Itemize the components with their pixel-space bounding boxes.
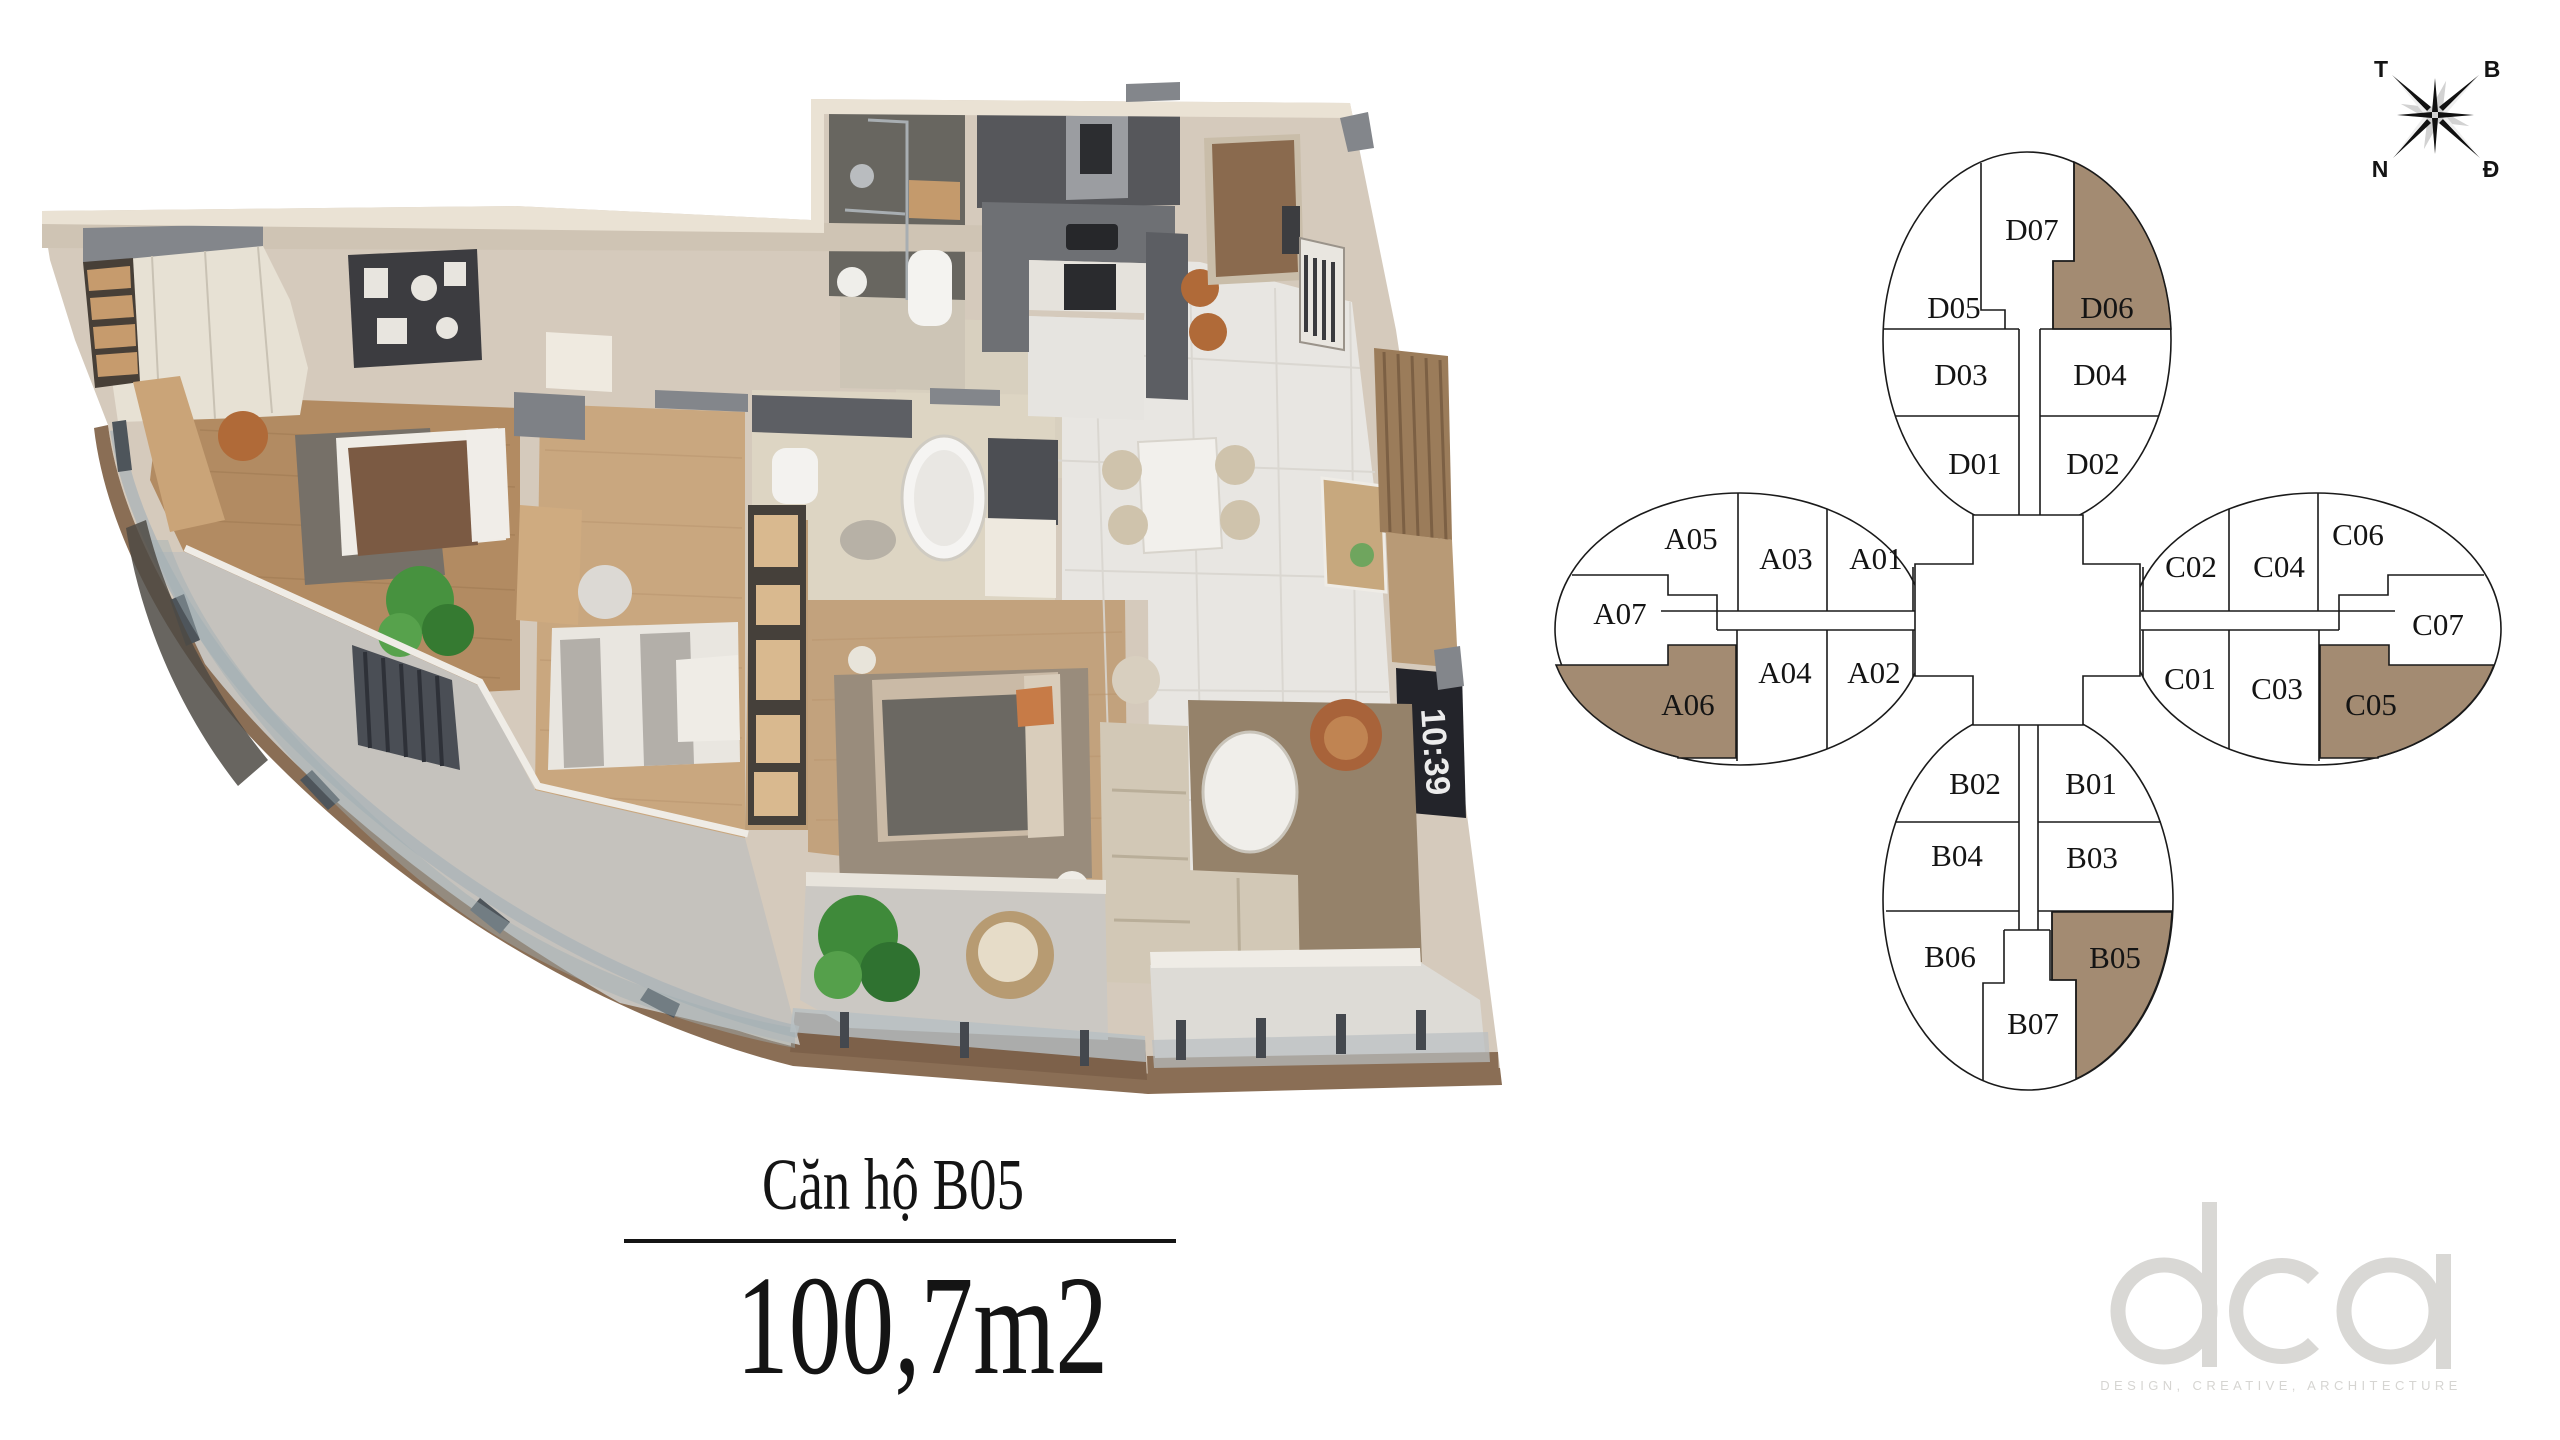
svg-text:D03: D03	[1934, 357, 1987, 392]
svg-text:10:39: 10:39	[1413, 707, 1457, 796]
svg-text:A05: A05	[1664, 521, 1717, 556]
svg-text:C06: C06	[2332, 517, 2384, 552]
svg-text:C07: C07	[2412, 607, 2464, 642]
svg-text:D06: D06	[2080, 290, 2133, 325]
svg-text:C02: C02	[2165, 549, 2217, 584]
svg-text:D01: D01	[1948, 446, 2001, 481]
svg-text:T: T	[2374, 56, 2388, 82]
svg-text:Căn hộ B05: Căn hộ B05	[762, 1144, 1024, 1225]
svg-text:100,7m2: 100,7m2	[736, 1246, 1108, 1404]
svg-text:B05: B05	[2089, 940, 2141, 975]
svg-text:C05: C05	[2345, 687, 2397, 722]
svg-text:D02: D02	[2066, 446, 2119, 481]
svg-text:C03: C03	[2251, 671, 2303, 706]
svg-text:A06: A06	[1661, 687, 1714, 722]
svg-text:C01: C01	[2164, 661, 2216, 696]
svg-text:A07: A07	[1593, 596, 1646, 631]
svg-text:B01: B01	[2065, 766, 2117, 801]
svg-text:B: B	[2484, 56, 2501, 82]
svg-text:B03: B03	[2066, 840, 2118, 875]
svg-text:D05: D05	[1927, 290, 1980, 325]
svg-text:B02: B02	[1949, 766, 2001, 801]
svg-text:D04: D04	[2073, 357, 2127, 392]
svg-text:D07: D07	[2005, 212, 2058, 247]
svg-text:A04: A04	[1758, 655, 1812, 690]
svg-text:DESIGN, CREATIVE, ARCHITECTURE: DESIGN, CREATIVE, ARCHITECTURE	[2100, 1378, 2461, 1393]
svg-text:A01: A01	[1849, 541, 1902, 576]
svg-text:B04: B04	[1931, 838, 1983, 873]
svg-text:C04: C04	[2253, 549, 2305, 584]
svg-text:B07: B07	[2007, 1006, 2059, 1041]
svg-text:N: N	[2372, 156, 2389, 182]
svg-text:B06: B06	[1924, 939, 1976, 974]
svg-text:Đ: Đ	[2483, 156, 2500, 182]
svg-text:A02: A02	[1847, 655, 1900, 690]
svg-text:A03: A03	[1759, 541, 1812, 576]
